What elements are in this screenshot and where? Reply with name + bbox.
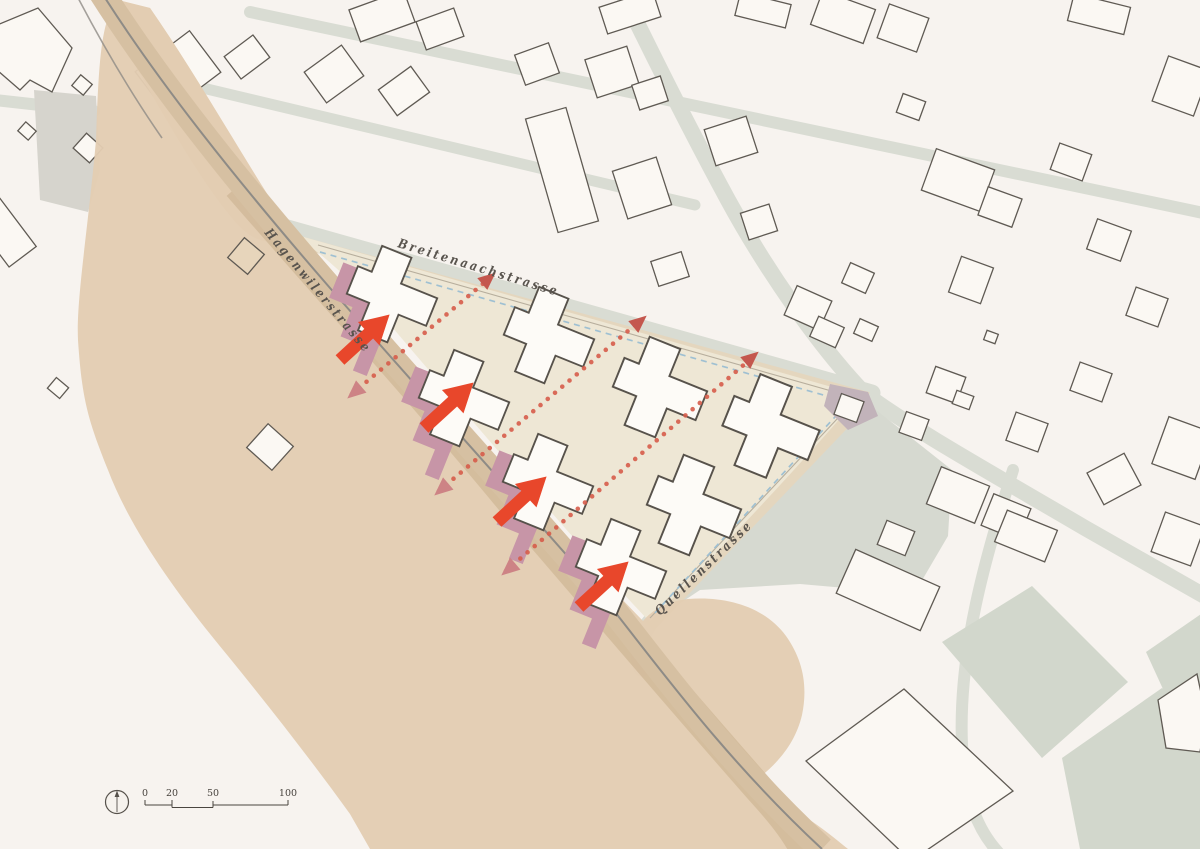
scale-label-0: 0 (142, 788, 148, 799)
site-plan-page: Hagenwilerstrasse Breitenaachstrasse Que… (0, 0, 1200, 849)
scale-label-100: 100 (279, 788, 297, 799)
scale-label-20: 20 (166, 788, 178, 799)
scale-label-50: 50 (207, 788, 219, 799)
north-arrow-icon (106, 791, 129, 814)
site-plan-map: Hagenwilerstrasse Breitenaachstrasse Que… (0, 0, 1200, 849)
